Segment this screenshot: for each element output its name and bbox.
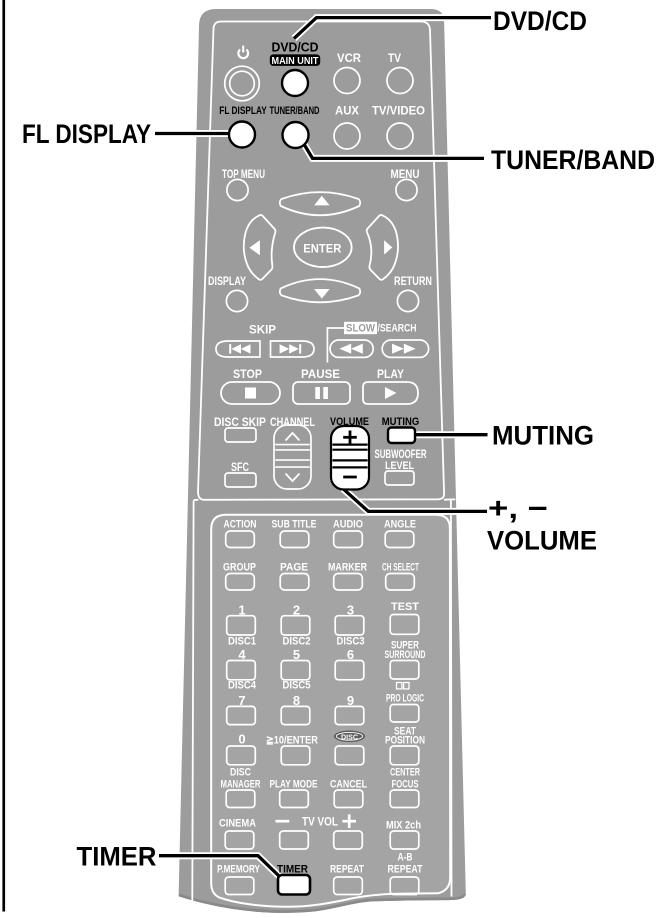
svg-text:VOLUME: VOLUME [487,525,597,555]
svg-text:PLAY MODE: PLAY MODE [270,779,318,791]
svg-text:AUDIO: AUDIO [333,519,363,531]
svg-text:/SEARCH: /SEARCH [378,323,417,335]
svg-text:A-B: A-B [398,852,413,864]
svg-text:TV/VIDEO: TV/VIDEO [372,104,425,118]
svg-text:TEST: TEST [391,601,419,613]
svg-text:FOCUS: FOCUS [392,779,419,791]
svg-text:TUNER/BAND: TUNER/BAND [270,105,320,117]
svg-text:CENTER: CENTER [390,767,420,779]
svg-text:≧10/ENTER: ≧10/ENTER [266,735,318,747]
svg-text:DISC: DISC [341,732,359,741]
svg-text:DISC SKIP: DISC SKIP [214,415,266,429]
svg-text:STOP: STOP [233,367,262,381]
svg-text:ACTION: ACTION [224,519,257,531]
svg-text:MIX 2ch: MIX 2ch [386,820,421,832]
svg-text:DISPLAY: DISPLAY [208,274,246,288]
svg-text:PLAY: PLAY [377,367,404,381]
svg-text:ANGLE: ANGLE [384,519,416,531]
svg-text:0: 0 [238,732,245,747]
svg-text:MARKER: MARKER [328,562,367,574]
svg-text:MANAGER: MANAGER [221,779,261,791]
svg-text:RETURN: RETURN [394,274,432,288]
svg-text:CH SELECT: CH SELECT [382,562,419,574]
svg-text:5: 5 [293,647,300,662]
svg-text:P.MEMORY: P.MEMORY [217,864,260,876]
svg-text:TUNER/BAND: TUNER/BAND [491,145,655,175]
svg-text:8: 8 [293,693,300,708]
svg-text:DISC1: DISC1 [228,635,256,647]
svg-text:TV VOL: TV VOL [302,815,338,829]
svg-text:DISC2: DISC2 [283,635,311,647]
svg-text:CHANNEL: CHANNEL [270,415,315,429]
svg-text:9: 9 [347,693,354,708]
svg-text:DISC3: DISC3 [337,635,365,647]
svg-text:7: 7 [238,693,245,708]
svg-text:SKIP: SKIP [249,323,276,337]
svg-text:DISC: DISC [230,767,251,779]
svg-text:SFC: SFC [231,460,249,474]
svg-text:PAGE: PAGE [280,562,308,574]
svg-text:SUB TITLE: SUB TITLE [272,519,317,531]
svg-text:DVD/CD: DVD/CD [493,6,587,36]
svg-text:PRO LOGIC: PRO LOGIC [386,693,424,705]
svg-text:VCR: VCR [337,51,361,65]
svg-text:FL DISPLAY: FL DISPLAY [219,105,267,117]
svg-text:MUTING: MUTING [382,416,420,428]
svg-text:GROUP: GROUP [223,562,256,574]
svg-text:MUTING: MUTING [492,421,594,451]
svg-text:6: 6 [347,647,354,662]
svg-text:+, −: +, − [488,493,548,525]
svg-text:FL DISPLAY: FL DISPLAY [22,119,151,149]
svg-text:REPEAT: REPEAT [388,864,423,876]
svg-text:SURROUND: SURROUND [385,649,426,661]
svg-text:AUX: AUX [335,104,359,118]
svg-text:CINEMA: CINEMA [219,818,256,830]
svg-text:4: 4 [238,647,246,662]
svg-text:TOP MENU: TOP MENU [222,167,265,181]
svg-text:SLOW: SLOW [346,323,376,335]
svg-text:MAIN UNIT: MAIN UNIT [272,56,319,67]
svg-text:POSITION: POSITION [385,735,425,747]
svg-text:CANCEL: CANCEL [330,779,367,791]
svg-text:ENTER: ENTER [303,243,342,255]
svg-text:REPEAT: REPEAT [330,864,364,876]
svg-text:TV: TV [388,51,401,65]
svg-text:DISC5: DISC5 [283,680,311,692]
svg-text:PAUSE: PAUSE [301,367,340,381]
svg-text:DVD/CD: DVD/CD [272,40,319,54]
svg-text:TIMER: TIMER [77,841,157,871]
svg-text:DISC4: DISC4 [228,680,257,692]
